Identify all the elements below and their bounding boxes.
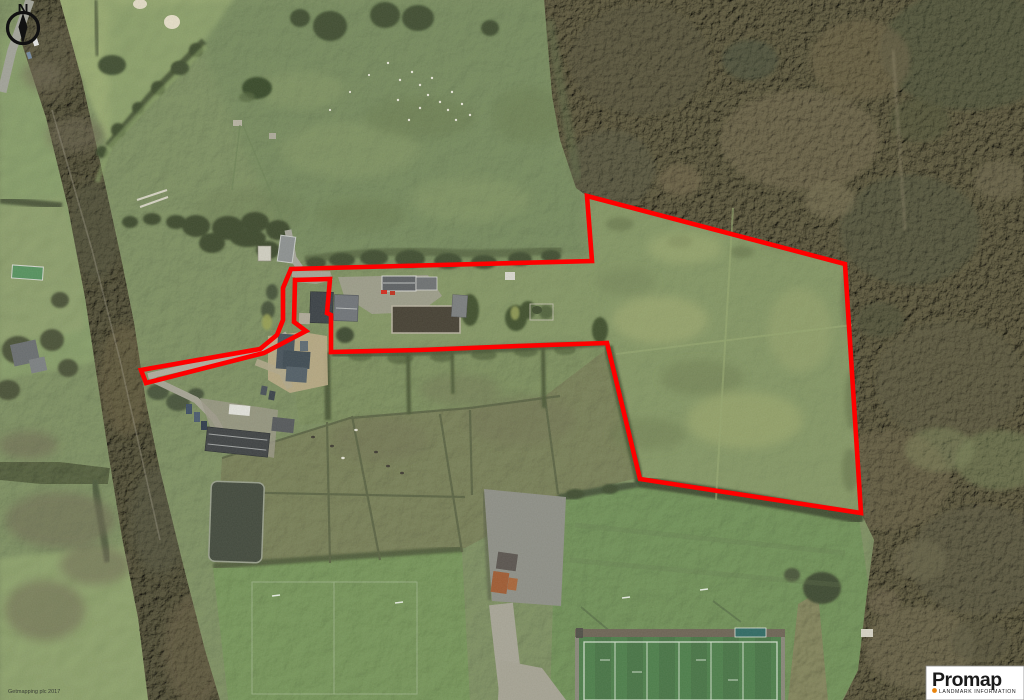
svg-text:LANDMARK INFORMATION: LANDMARK INFORMATION: [939, 689, 1016, 695]
svg-text:Promap: Promap: [932, 669, 1002, 691]
svg-text:N: N: [18, 1, 29, 18]
svg-text:Getmapping plc 2017: Getmapping plc 2017: [8, 689, 60, 695]
